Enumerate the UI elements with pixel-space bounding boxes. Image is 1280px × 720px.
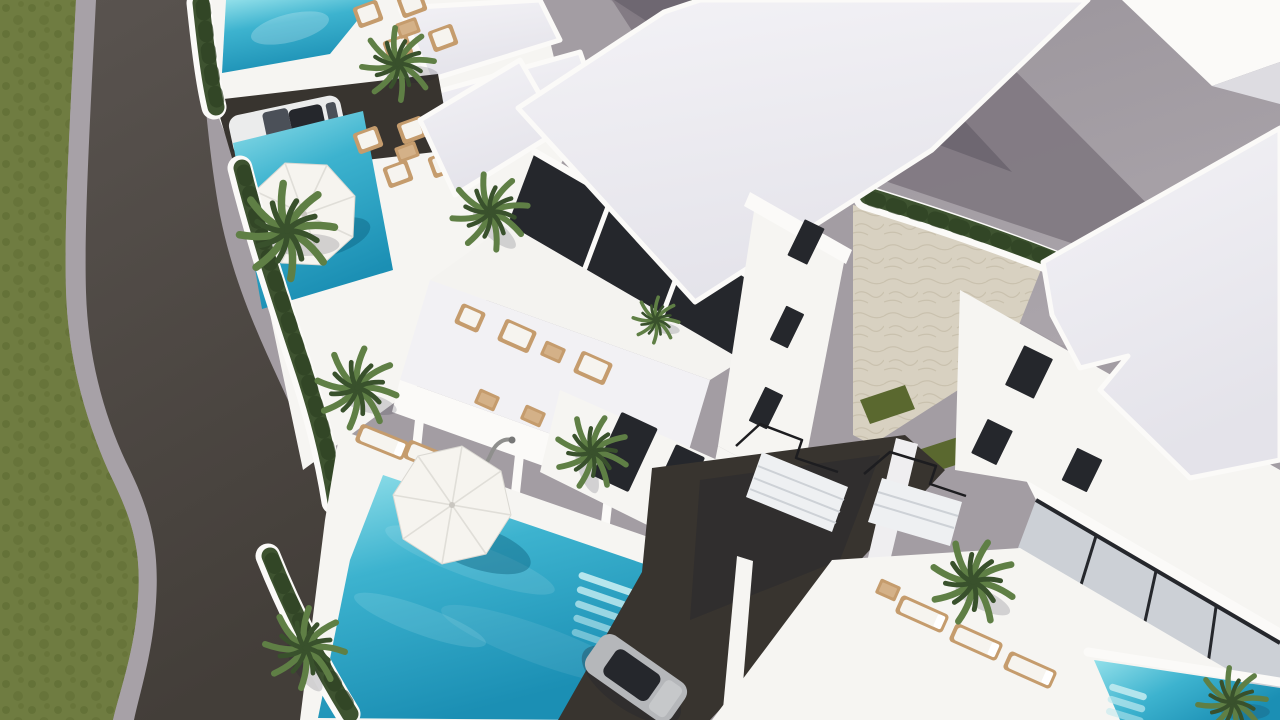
aerial-render bbox=[0, 0, 1280, 720]
render-canvas bbox=[0, 0, 1280, 720]
